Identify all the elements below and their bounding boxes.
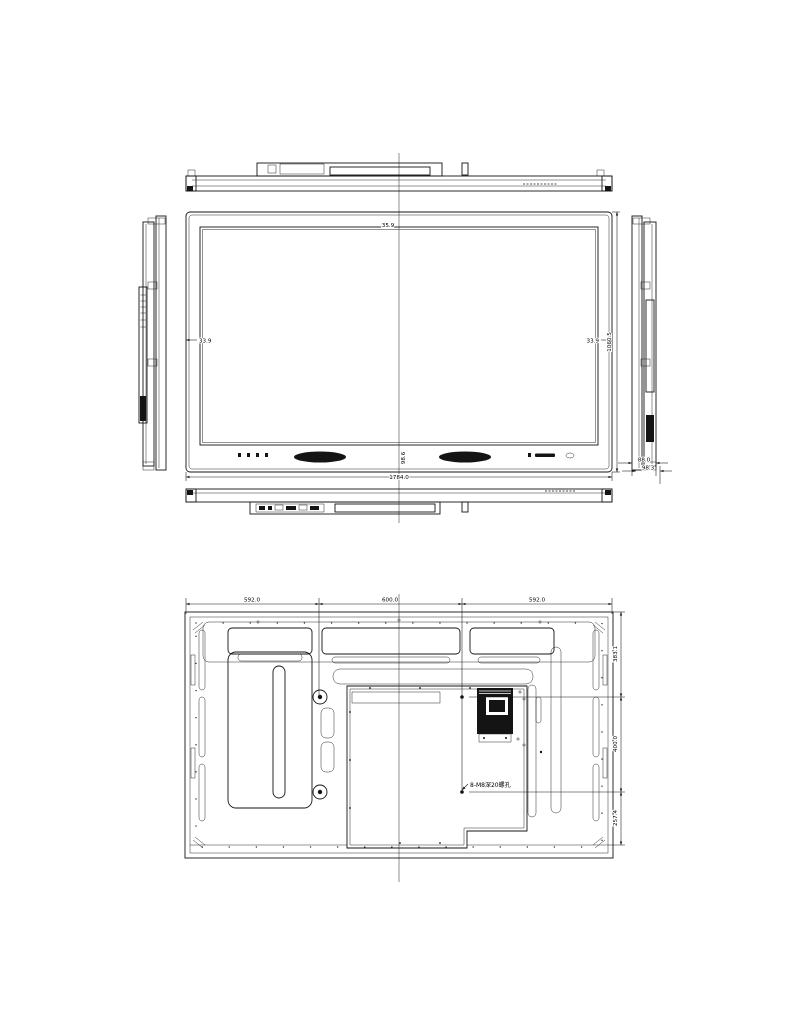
dimension-depth-panel: 88.0 bbox=[638, 458, 651, 464]
rear-inner-strip-slot bbox=[536, 697, 541, 723]
power-module bbox=[477, 688, 513, 742]
dimension-rear-right-offset: 592.0 bbox=[529, 598, 545, 604]
rear-recess-left bbox=[228, 628, 312, 654]
right-side-top-cap bbox=[633, 218, 650, 224]
bottom-right-foot bbox=[605, 490, 611, 495]
dimension-rear-bottom-offset: 257.4 bbox=[613, 810, 619, 826]
top-vent-grille bbox=[330, 167, 430, 175]
top-small-module bbox=[268, 165, 276, 173]
rear-left-panel-slot bbox=[273, 666, 285, 798]
dimension-overall-width: 1784.0 bbox=[389, 475, 409, 481]
plate-screws bbox=[349, 687, 542, 844]
left-side-rear-profile bbox=[143, 222, 154, 466]
bottom-left-foot bbox=[187, 490, 193, 495]
left-side-connector-block bbox=[140, 396, 146, 421]
bottom-io-ports bbox=[256, 504, 324, 512]
dimension-left-bezel: 33.9 bbox=[199, 339, 212, 345]
right-side-vent-grille bbox=[646, 300, 654, 392]
ir-sensor bbox=[566, 453, 574, 458]
dimension-vesa-height: 400.0 bbox=[613, 736, 619, 752]
rear-inner-strip bbox=[528, 685, 536, 817]
rear-channel-segment-upper bbox=[321, 708, 334, 738]
top-right-foot bbox=[605, 186, 611, 191]
top-left-foot bbox=[187, 186, 193, 191]
top-left-bracket bbox=[188, 170, 195, 176]
left-side-front-profile bbox=[156, 216, 166, 470]
display-engineering-drawing: 35.9 33.9 33.9 1060.5 1784.0 98.6 bbox=[0, 0, 792, 1033]
dimension-rear-top-offset: 383.1 bbox=[613, 646, 619, 662]
dimension-right-bezel: 33.9 bbox=[587, 339, 600, 345]
speaker-grille-right bbox=[439, 452, 491, 463]
technical-drawing-page: 35.9 33.9 33.9 1060.5 1784.0 98.6 bbox=[0, 0, 792, 1033]
dimension-rear-left-offset: 592.0 bbox=[244, 598, 260, 604]
rear-rib-left bbox=[238, 654, 302, 661]
dimension-top-bezel: 35.9 bbox=[382, 223, 395, 229]
bottom-vent-grille bbox=[335, 504, 435, 512]
mount-hole-note: 8-M8深20螺孔 bbox=[470, 781, 511, 789]
top-module bbox=[280, 164, 324, 174]
dimension-overall-height: 1060.5 bbox=[607, 332, 613, 352]
rear-view: 8-M8深20螺孔 592.0 600.0 592.0 383.1 400.0 … bbox=[185, 598, 625, 859]
dimension-vesa-width: 600.0 bbox=[382, 598, 398, 604]
speaker-grille-left bbox=[294, 452, 346, 463]
brand-logo bbox=[528, 453, 555, 457]
front-view: 35.9 33.9 33.9 1060.5 1784.0 98.6 bbox=[186, 212, 620, 481]
left-side-top-cap bbox=[148, 218, 165, 224]
left-side-view bbox=[139, 216, 166, 470]
rear-recess-center bbox=[322, 628, 460, 654]
top-right-bracket bbox=[597, 170, 604, 176]
rear-top-bar bbox=[333, 669, 533, 684]
rear-vent-grid bbox=[352, 692, 440, 703]
rear-channel-segment-lower bbox=[321, 742, 334, 772]
rear-right-channel bbox=[551, 647, 561, 813]
right-side-front-profile bbox=[632, 216, 642, 470]
rear-left-panel bbox=[228, 652, 312, 808]
right-side-view: 88.0 98.3 bbox=[618, 216, 672, 484]
bottom-tab bbox=[462, 502, 468, 512]
right-side-connector-block bbox=[646, 415, 654, 442]
rear-recess-right bbox=[470, 628, 554, 654]
control-buttons bbox=[238, 453, 268, 457]
dimension-bottom-bezel: 98.6 bbox=[401, 451, 407, 464]
dimension-depth-overall: 98.3 bbox=[642, 466, 655, 472]
top-tab bbox=[462, 163, 468, 175]
